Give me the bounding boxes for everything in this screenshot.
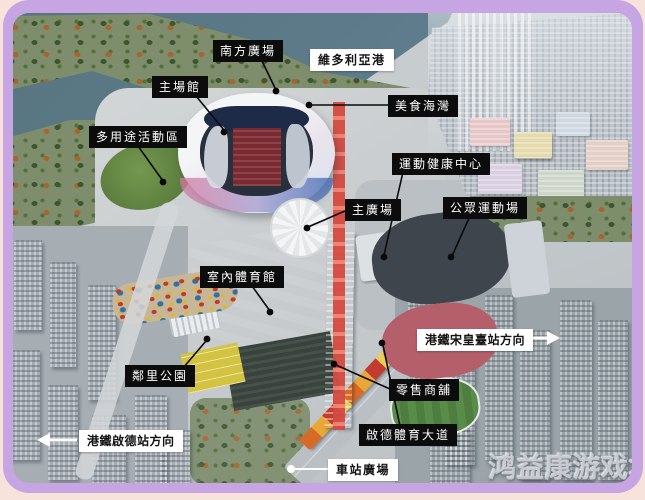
pastel-block <box>470 118 510 146</box>
residential-tower <box>48 385 78 480</box>
pastel-block <box>586 140 628 170</box>
label-public-sports-ground: 公眾運動場 <box>443 197 527 219</box>
pastel-block <box>556 112 590 136</box>
residential-tower <box>50 262 76 367</box>
label-south-plaza: 南方廣場 <box>213 40 283 62</box>
watermark: 鸿益康游戏坊 <box>489 446 632 483</box>
label-retail-shops: 零售商舖 <box>389 379 459 401</box>
circular-plaza <box>270 198 330 258</box>
residential-tower <box>13 350 40 460</box>
aerial-photo: 南方廣場 維多利亞港 主場館 美食海灣 多用途活動區 運動健康中心 主廣場 公眾… <box>13 13 632 483</box>
label-kai-tak-sports-avenue: 啟德體育大道 <box>359 424 457 446</box>
label-indoor-sports-hall: 室內體育館 <box>200 266 284 288</box>
label-main-plaza: 主廣場 <box>345 199 401 221</box>
stadium-roof-panel-left <box>204 126 228 188</box>
label-neighbourhood-park: 鄰里公園 <box>125 365 195 387</box>
label-main-stadium: 主場館 <box>152 76 208 98</box>
stadium-field <box>233 128 281 186</box>
photo-frame: 南方廣場 維多利亞港 主場館 美食海灣 多用途活動區 運動健康中心 主廣場 公眾… <box>3 0 643 493</box>
label-mtr-sung-wong-toi: 港鐵宋皇臺站方向 <box>417 329 533 351</box>
label-sports-health-center: 運動健康中心 <box>392 153 490 175</box>
aerial-scene: 南方廣場 維多利亞港 主場館 美食海灣 多用途活動區 運動健康中心 主廣場 公眾… <box>13 13 632 483</box>
page-background: 南方廣場 維多利亞港 主場館 美食海灣 多用途活動區 運動健康中心 主廣場 公眾… <box>0 0 645 500</box>
label-victoria-harbour: 維多利亞港 <box>310 49 394 71</box>
label-multi-purpose-zone: 多用途活動區 <box>89 126 187 148</box>
label-mtr-kai-tak: 港鐵啟德站方向 <box>79 430 183 452</box>
label-station-plaza: 車站廣場 <box>328 459 398 481</box>
pastel-block <box>514 132 552 158</box>
residential-tower <box>14 240 42 330</box>
label-food-bay: 美食海灣 <box>388 95 458 117</box>
